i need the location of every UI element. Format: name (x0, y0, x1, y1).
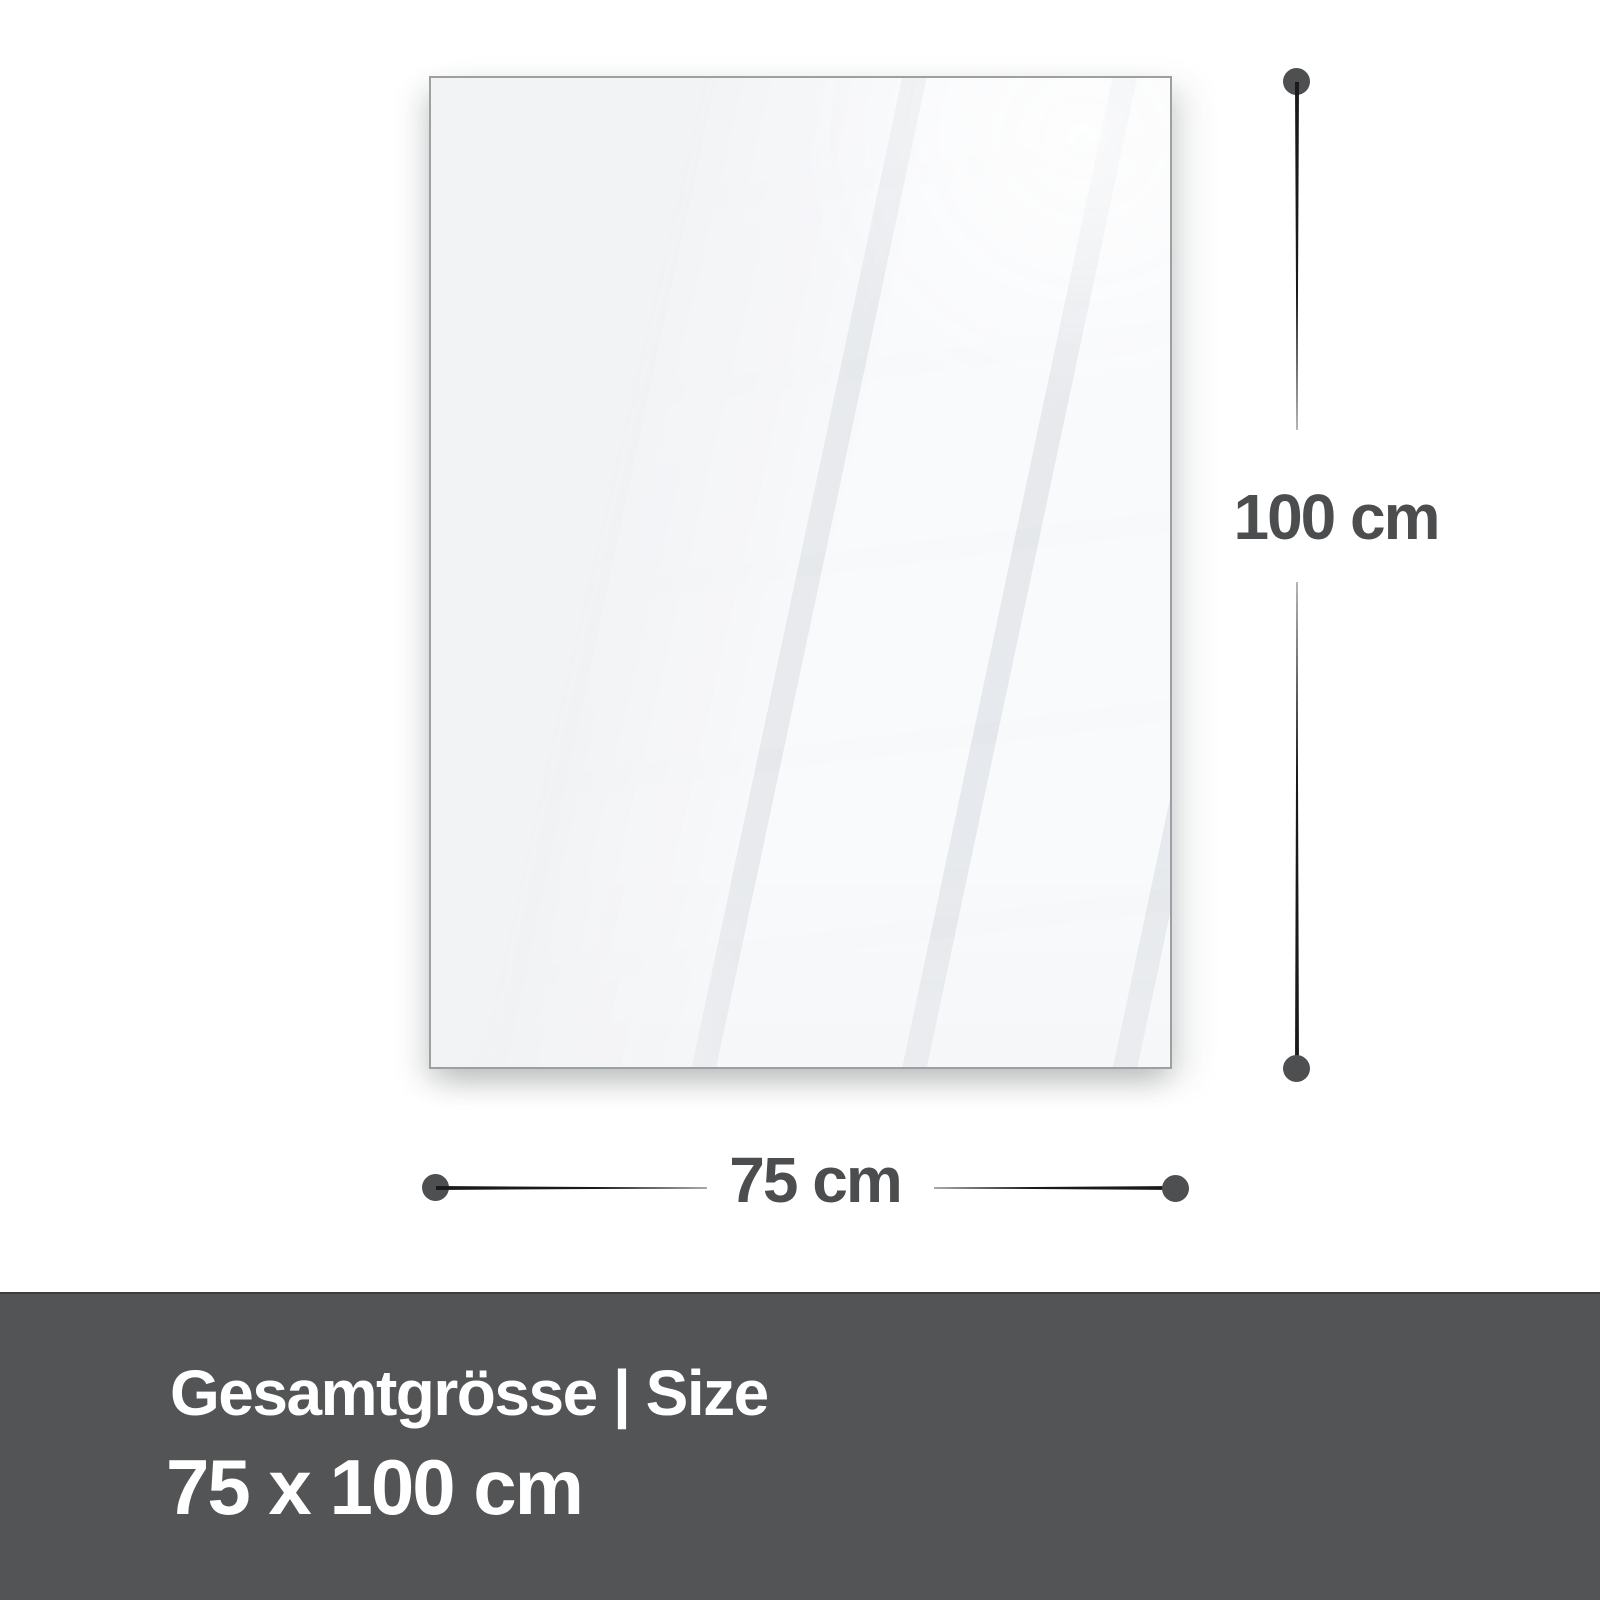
footer-size-value: 75 x 100 cm (166, 1448, 582, 1526)
product-size-diagram: 100 cm 75 cm Gesamtgrösse | Size 75 x 10… (0, 0, 1600, 1600)
glass-reflection (431, 78, 1170, 1067)
height-dimension-label: 100 cm (1186, 485, 1486, 549)
footer-title: Gesamtgrösse | Size (170, 1361, 768, 1425)
product-panel (429, 76, 1172, 1069)
height-dimension-bottom-dot-icon (1283, 1055, 1310, 1082)
width-dimension-label: 75 cm (665, 1148, 965, 1212)
width-dimension-right-dot-icon (1162, 1175, 1189, 1202)
height-dimension-line-top (1295, 82, 1299, 430)
width-dimension-line-right (934, 1186, 1176, 1190)
height-dimension-line-bottom (1295, 582, 1299, 1069)
reflection-fade (431, 78, 1170, 1067)
